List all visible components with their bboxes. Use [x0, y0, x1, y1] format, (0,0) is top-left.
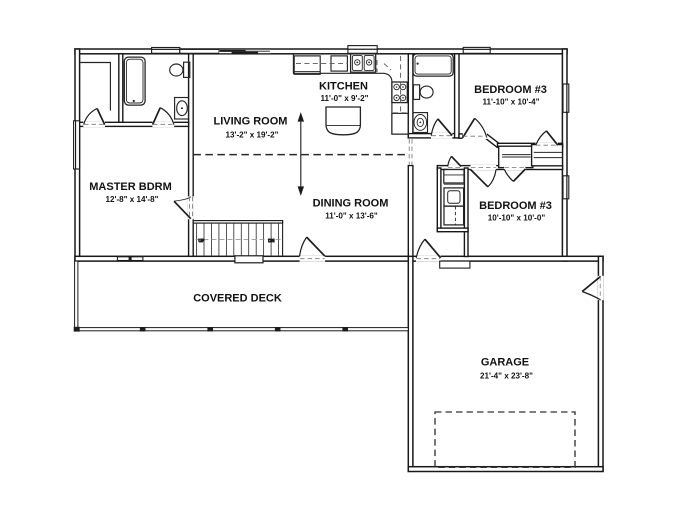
svg-text:DN: DN — [268, 238, 274, 243]
svg-text:11'-0" x 13'-6": 11'-0" x 13'-6" — [325, 212, 378, 221]
svg-text:KITCHEN: KITCHEN — [319, 81, 368, 93]
svg-text:COVERED DECK: COVERED DECK — [193, 293, 282, 305]
svg-text:GARAGE: GARAGE — [481, 357, 529, 369]
svg-text:UP: UP — [199, 238, 205, 243]
svg-text:11'-10" x 10'-4": 11'-10" x 10'-4" — [483, 98, 540, 107]
svg-text:BEDROOM #3: BEDROOM #3 — [479, 200, 552, 212]
svg-text:DINING ROOM: DINING ROOM — [313, 198, 389, 210]
svg-text:LIVING ROOM: LIVING ROOM — [214, 116, 288, 128]
svg-text:13'-2" x 19'-2": 13'-2" x 19'-2" — [226, 131, 279, 140]
svg-text:10'-10" x 10'-0": 10'-10" x 10'-0" — [488, 214, 546, 223]
svg-text:MASTER BDRM: MASTER BDRM — [89, 181, 172, 193]
svg-text:BEDROOM #3: BEDROOM #3 — [474, 84, 547, 96]
svg-text:12'-8" x 14'-8": 12'-8" x 14'-8" — [106, 195, 159, 204]
svg-text:11'-0" x 9'-2": 11'-0" x 9'-2" — [321, 94, 369, 103]
svg-text:21'-4" x 23'-8": 21'-4" x 23'-8" — [480, 372, 533, 381]
